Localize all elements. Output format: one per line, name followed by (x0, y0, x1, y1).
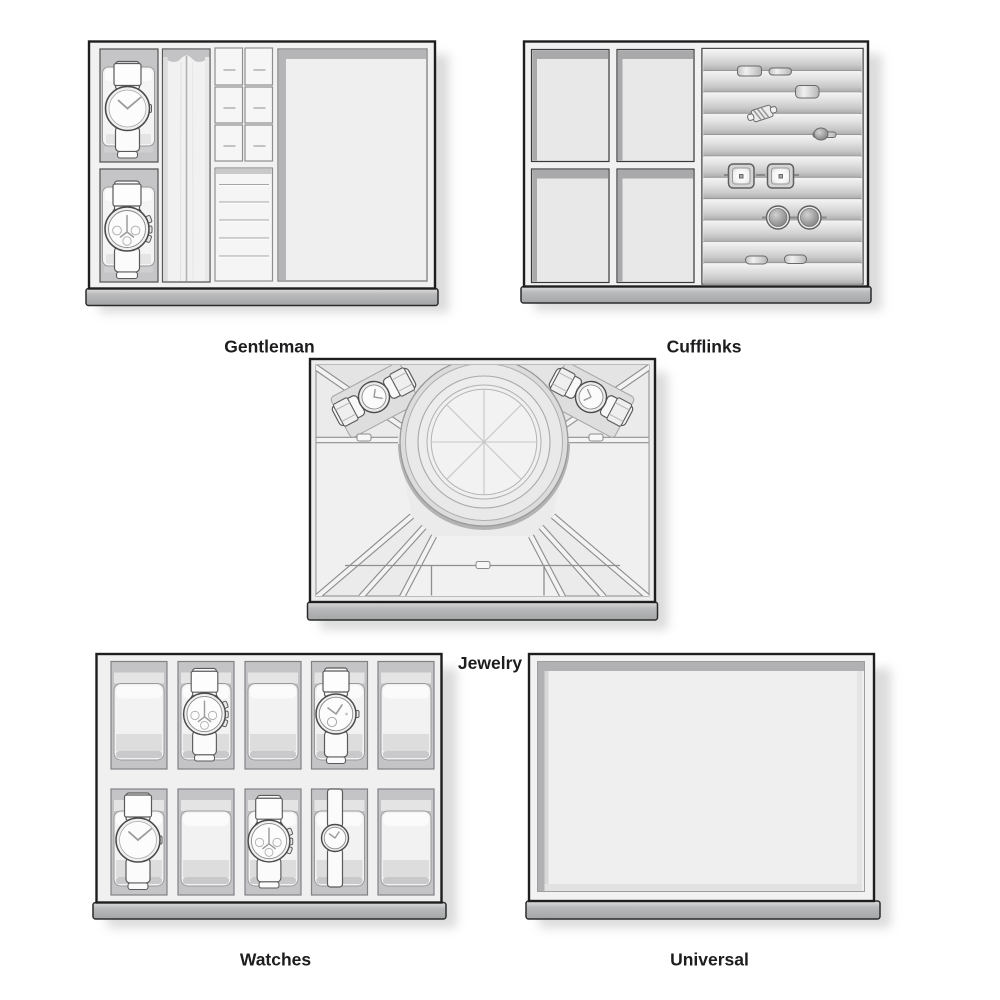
svg-text:Cufflinks: Cufflinks (667, 337, 742, 357)
svg-text:Gentleman: Gentleman (224, 337, 314, 357)
svg-text:Jewelry: Jewelry (458, 653, 522, 673)
svg-text:Watches: Watches (240, 950, 312, 970)
svg-text:Universal: Universal (670, 950, 749, 970)
